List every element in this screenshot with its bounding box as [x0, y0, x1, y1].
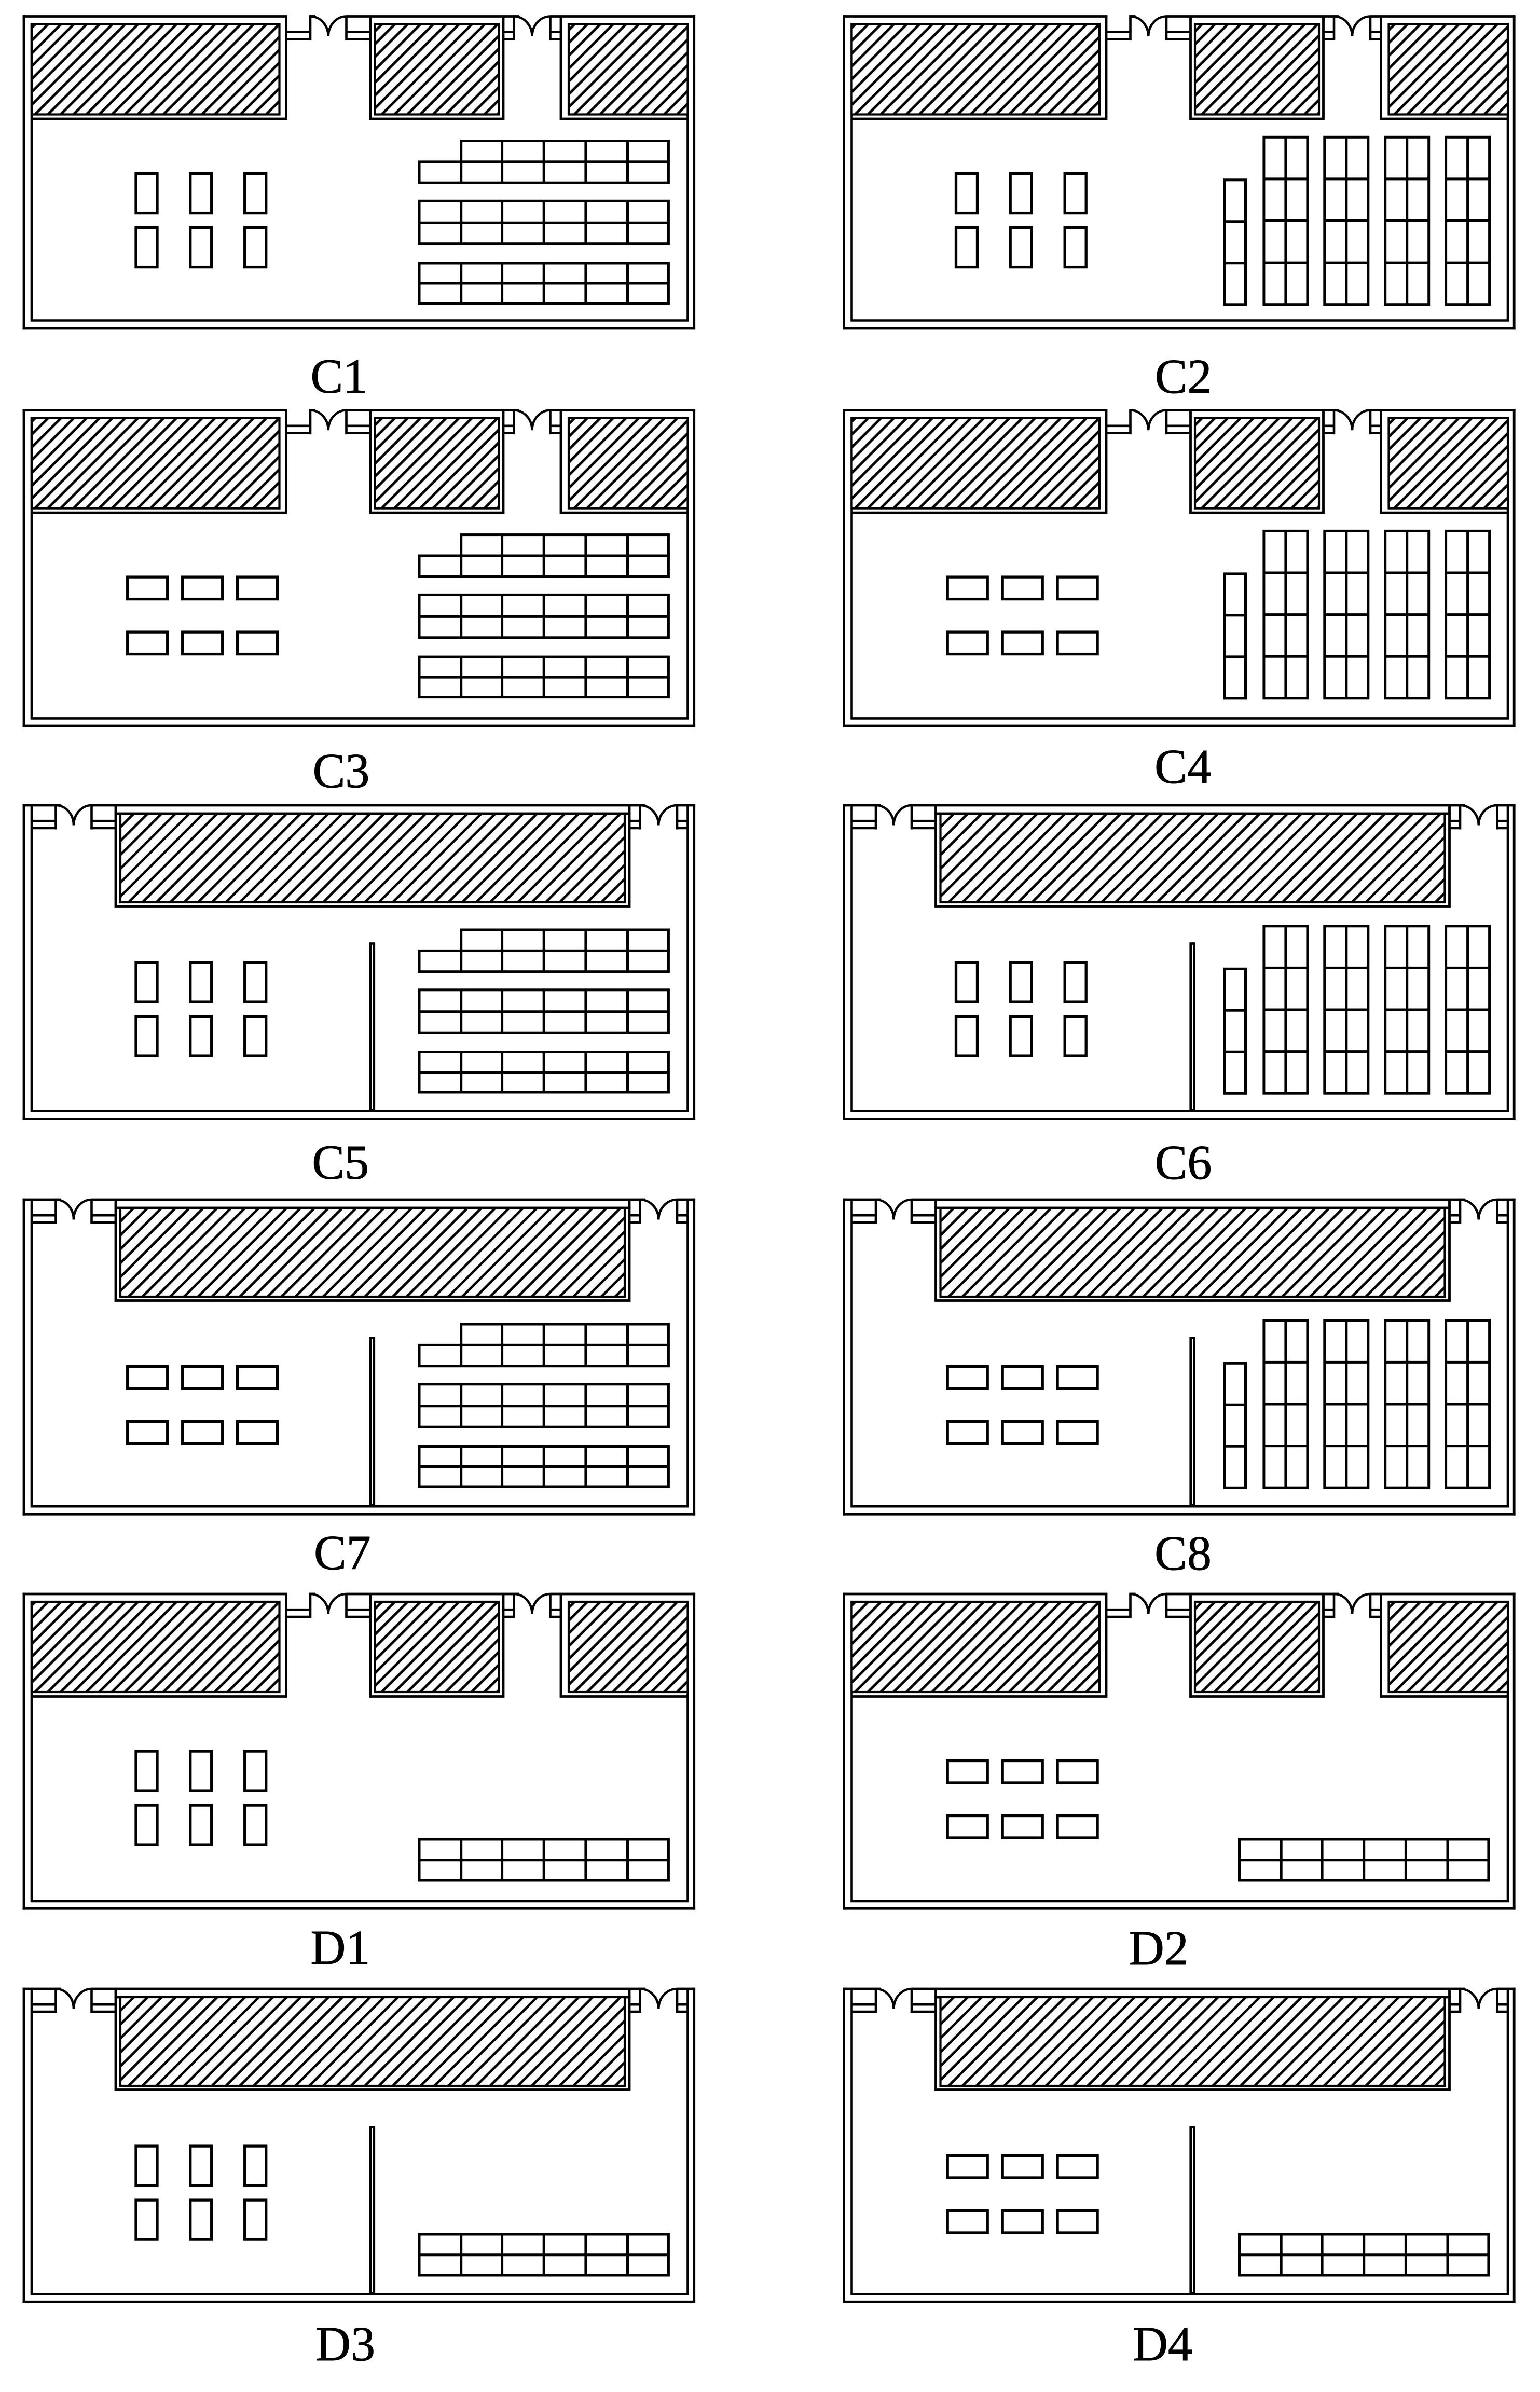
svg-text:C3: C3 [313, 744, 370, 798]
svg-text:D3: D3 [315, 2317, 375, 2371]
svg-text:D4: D4 [1133, 2317, 1192, 2371]
svg-text:C7: C7 [314, 1526, 371, 1580]
svg-text:C6: C6 [1155, 1136, 1212, 1190]
svg-text:C5: C5 [312, 1135, 369, 1189]
svg-text:D1: D1 [310, 1921, 370, 1975]
svg-text:C4: C4 [1154, 740, 1212, 794]
svg-text:C2: C2 [1155, 350, 1212, 404]
svg-text:C1: C1 [310, 350, 367, 404]
svg-text:D2: D2 [1129, 1921, 1189, 1975]
svg-text:C8: C8 [1154, 1527, 1212, 1580]
